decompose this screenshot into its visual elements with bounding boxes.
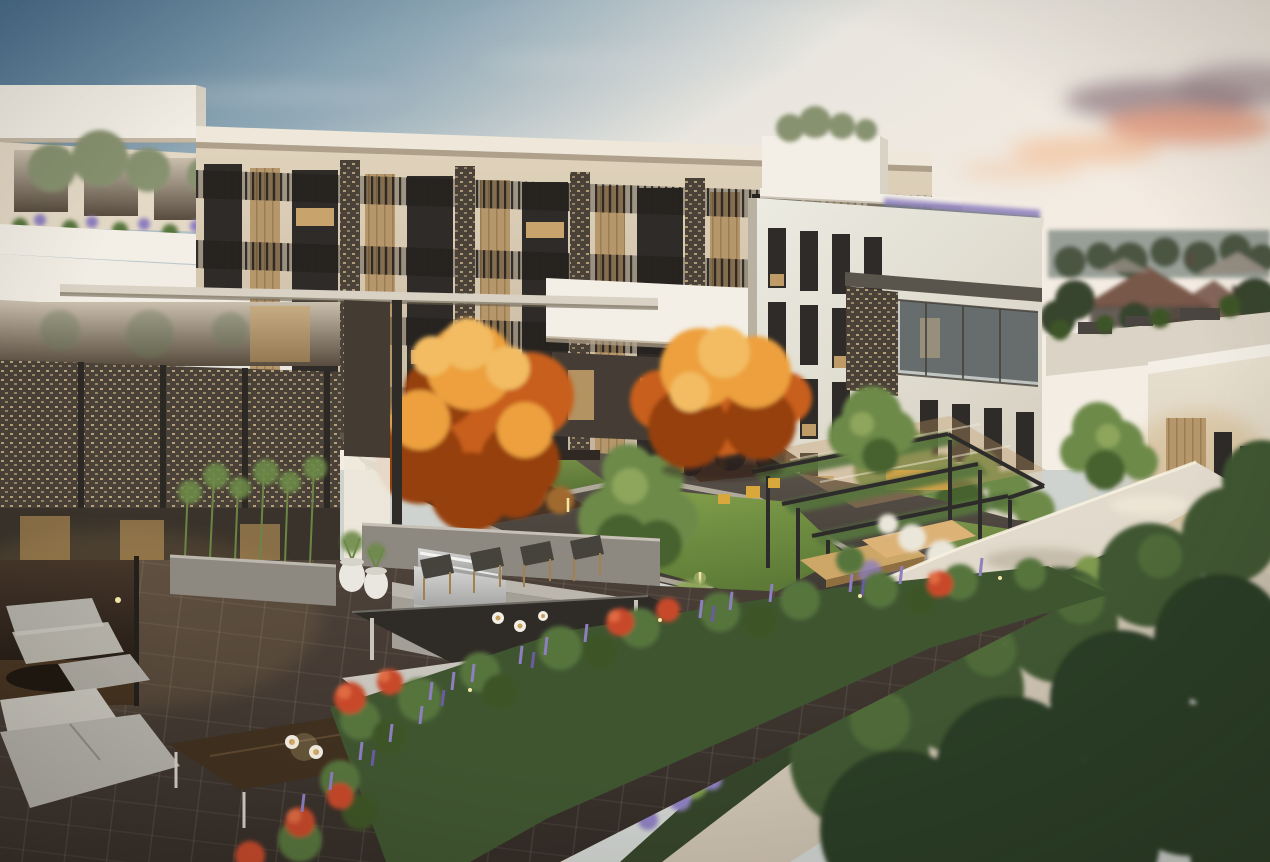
architectural-rendering	[0, 0, 1270, 862]
rendering-canvas	[0, 0, 1270, 862]
vignette-overlay	[0, 0, 1270, 862]
